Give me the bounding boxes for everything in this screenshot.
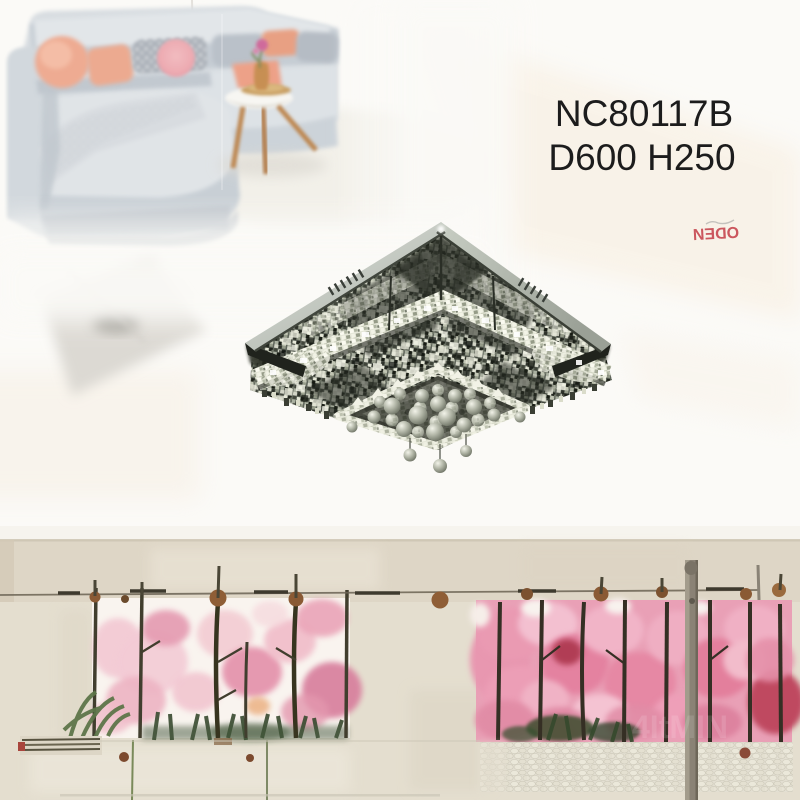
svg-text:4ItMIN: 4ItMIN <box>632 709 728 745</box>
svg-text:ODEN: ODEN <box>692 223 739 242</box>
svg-text:D600 H250: D600 H250 <box>548 137 735 178</box>
svg-text:NC80117B: NC80117B <box>555 93 733 134</box>
